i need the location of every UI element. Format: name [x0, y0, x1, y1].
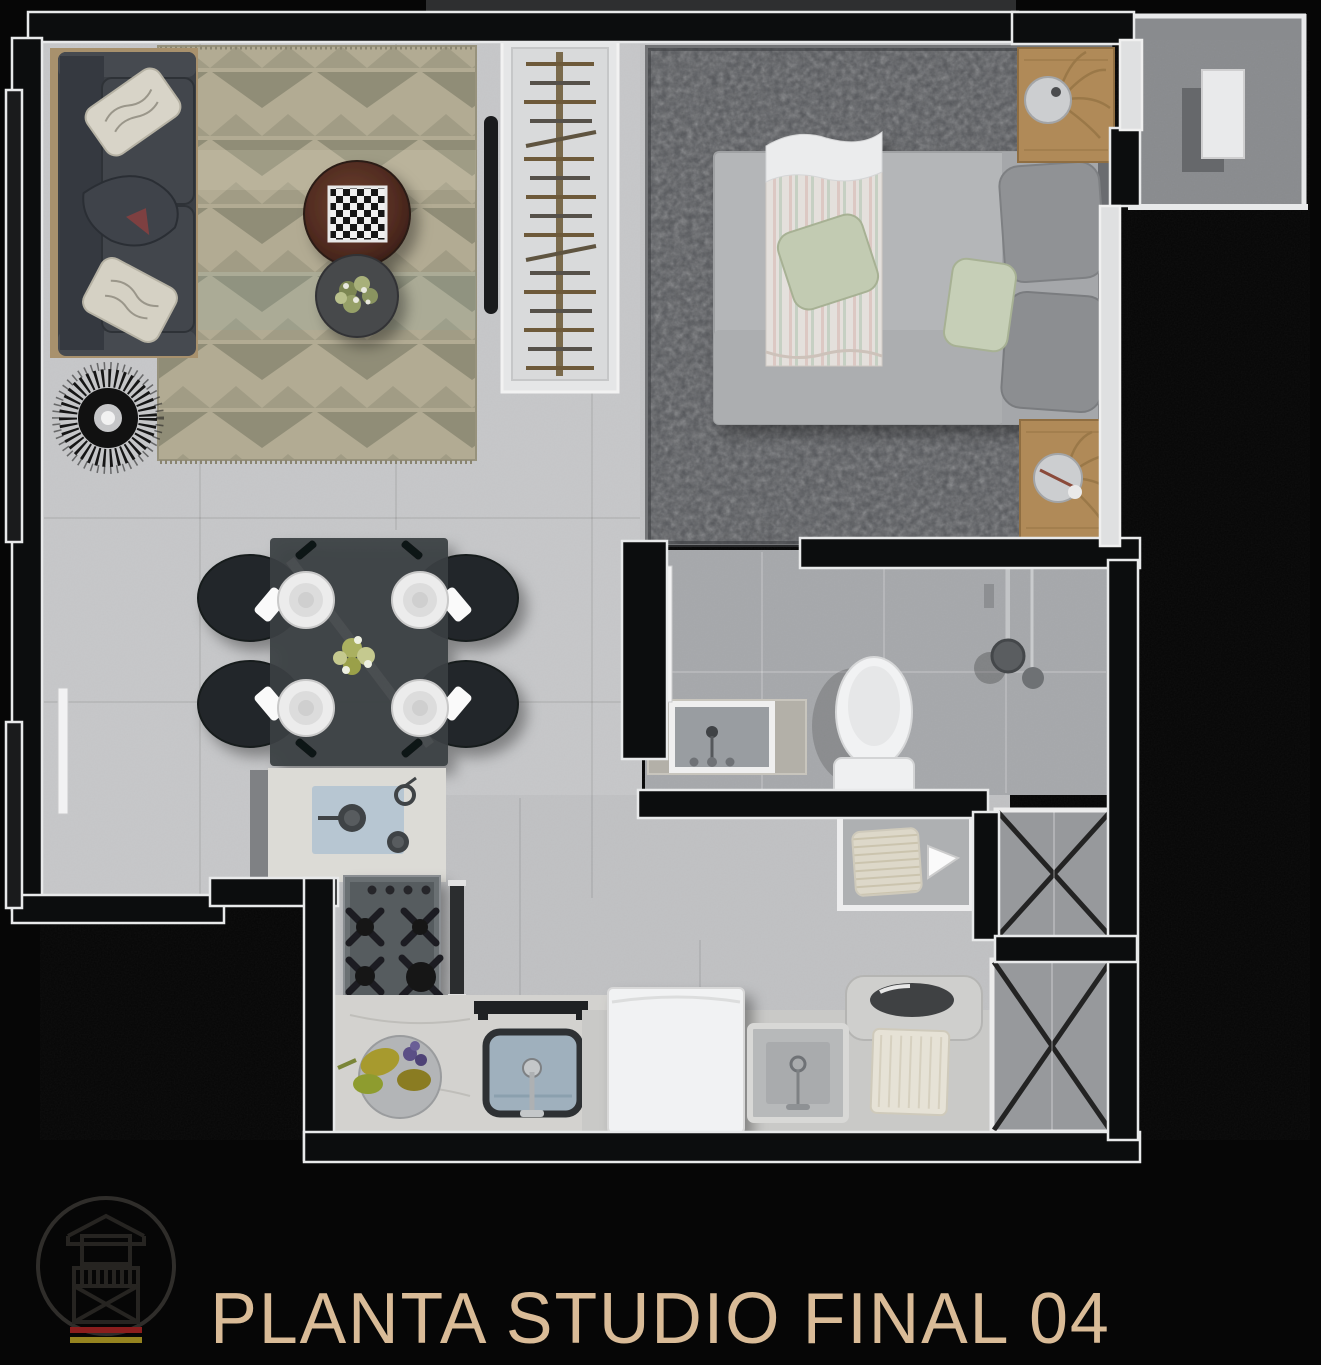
towel-niche — [840, 816, 972, 908]
cutting-board-with-pans — [312, 778, 416, 854]
page-title: PLANTA STUDIO FINAL 04 — [20, 1278, 1301, 1360]
shaft-upper — [996, 810, 1112, 938]
wall-niche-right — [973, 812, 999, 940]
wall-below-bath — [638, 790, 988, 818]
bedroom — [648, 48, 1116, 544]
wall-bottom-left-a — [12, 895, 224, 923]
wall-bottom — [304, 1132, 1140, 1162]
floor-plan — [0, 0, 1321, 1175]
kitchen-sink — [486, 1032, 580, 1117]
coffee-table — [304, 161, 410, 267]
vanity — [648, 700, 806, 774]
wall-top-right — [1012, 12, 1134, 44]
floor-plan-page: PLANTA STUDIO FINAL 04 — [0, 0, 1321, 1365]
washing-machine — [608, 988, 744, 1133]
side-table-with-plant — [316, 255, 398, 337]
nightstand-top — [1018, 48, 1114, 162]
wall-bath-left — [622, 541, 667, 759]
tv-panel — [484, 116, 498, 314]
vanity-sink — [672, 704, 772, 770]
folded-towel — [871, 1029, 950, 1116]
gray-pillow-bottom — [1000, 291, 1108, 414]
wall-bath-top — [800, 538, 1140, 568]
gas-cooktop — [344, 876, 440, 1004]
green-pillow-right — [942, 257, 1018, 353]
closet — [502, 36, 618, 392]
wall-right — [1108, 560, 1138, 1140]
laundry-sink — [750, 1026, 846, 1120]
chess-board — [329, 187, 386, 241]
towel-bar — [474, 1001, 588, 1014]
wall-top — [28, 12, 1018, 42]
oven-panel — [448, 880, 466, 1000]
wall-laundry-left — [304, 878, 334, 1160]
window-left-upper — [6, 90, 22, 542]
condenser-unit — [1202, 70, 1244, 158]
gray-pillow-top — [998, 161, 1106, 284]
living-room — [50, 46, 498, 470]
window-left-lower — [6, 722, 22, 908]
wall-between-shafts — [995, 936, 1137, 962]
entry-door-leaf — [58, 688, 68, 814]
area-rug — [158, 46, 476, 462]
wall-bedroom-pier — [1110, 128, 1140, 206]
balcony-door-frame — [1120, 40, 1142, 130]
window-bedroom-right — [1100, 206, 1120, 546]
double-bed — [714, 132, 1110, 426]
shaft-lower — [992, 960, 1112, 1132]
